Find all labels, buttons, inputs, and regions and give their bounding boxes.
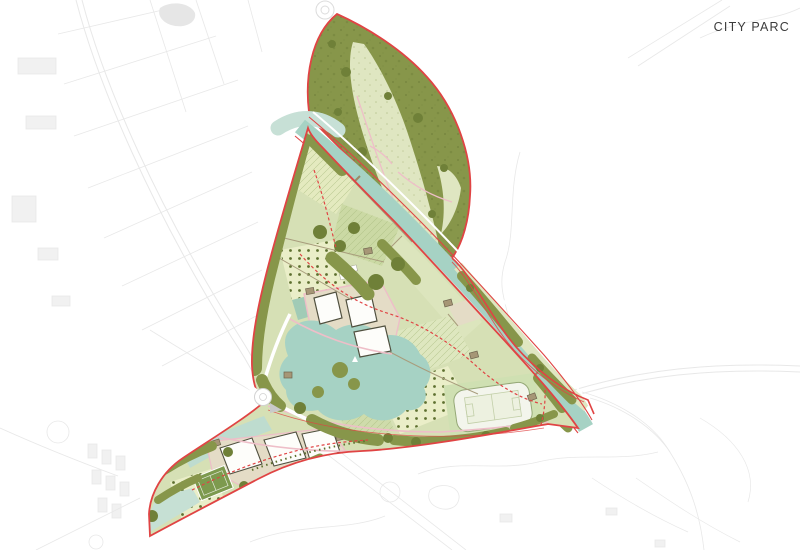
context-grey-blob xyxy=(159,3,195,26)
context-roundabout-north xyxy=(316,1,334,19)
siteplan-svg xyxy=(0,0,800,550)
masterplan-canvas: CITY PARC xyxy=(0,0,800,550)
context-buildings-west xyxy=(12,58,70,306)
context-roads-west xyxy=(58,0,267,394)
context-highway-southeast xyxy=(574,365,800,550)
context-buildings-southwest xyxy=(0,421,140,550)
map-title: CITY PARC xyxy=(714,20,790,34)
